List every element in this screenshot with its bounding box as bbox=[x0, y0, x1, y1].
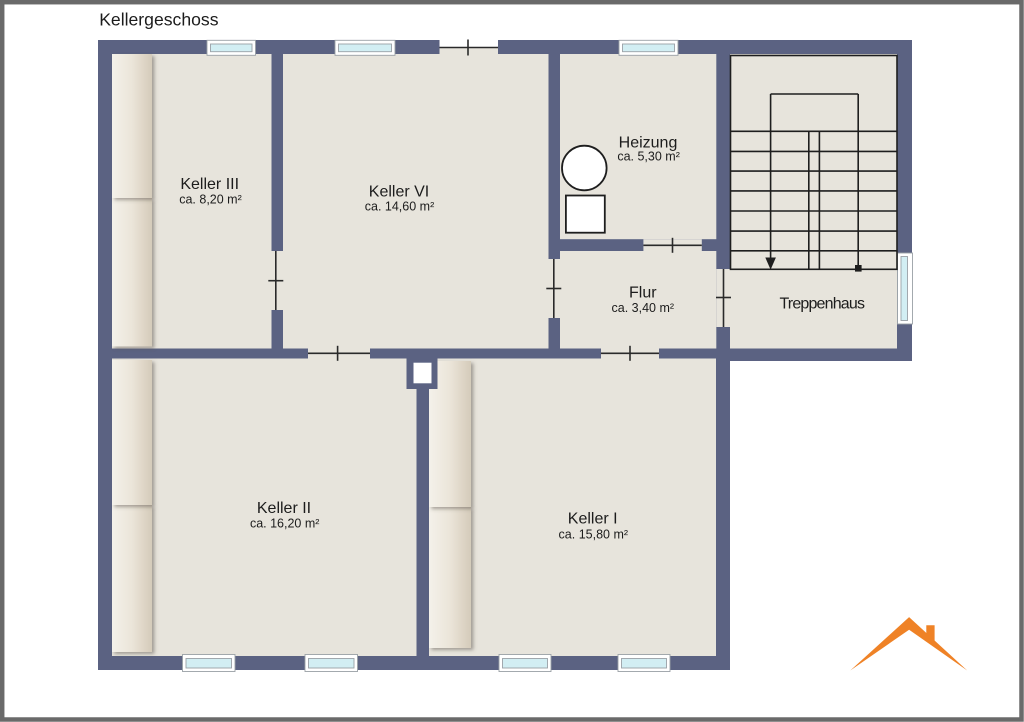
svg-text:ca. 16,20 m²: ca. 16,20 m² bbox=[250, 516, 319, 530]
svg-text:Keller VI: Keller VI bbox=[369, 184, 429, 201]
svg-text:ca. 5,30 m²: ca. 5,30 m² bbox=[617, 149, 680, 163]
svg-text:Keller I: Keller I bbox=[568, 511, 618, 528]
svg-text:ca. 14,60 m²: ca. 14,60 m² bbox=[365, 200, 434, 214]
svg-text:Keller II: Keller II bbox=[257, 500, 311, 517]
svg-text:Treppenhaus: Treppenhaus bbox=[779, 296, 865, 313]
svg-text:ca. 8,20 m²: ca. 8,20 m² bbox=[179, 193, 242, 207]
svg-text:Keller III: Keller III bbox=[180, 176, 239, 193]
svg-text:Kellergeschoss: Kellergeschoss bbox=[99, 10, 219, 30]
svg-text:Flur: Flur bbox=[629, 285, 657, 302]
svg-text:ca. 3,40 m²: ca. 3,40 m² bbox=[612, 301, 675, 315]
svg-text:ca. 15,80 m²: ca. 15,80 m² bbox=[559, 527, 628, 541]
